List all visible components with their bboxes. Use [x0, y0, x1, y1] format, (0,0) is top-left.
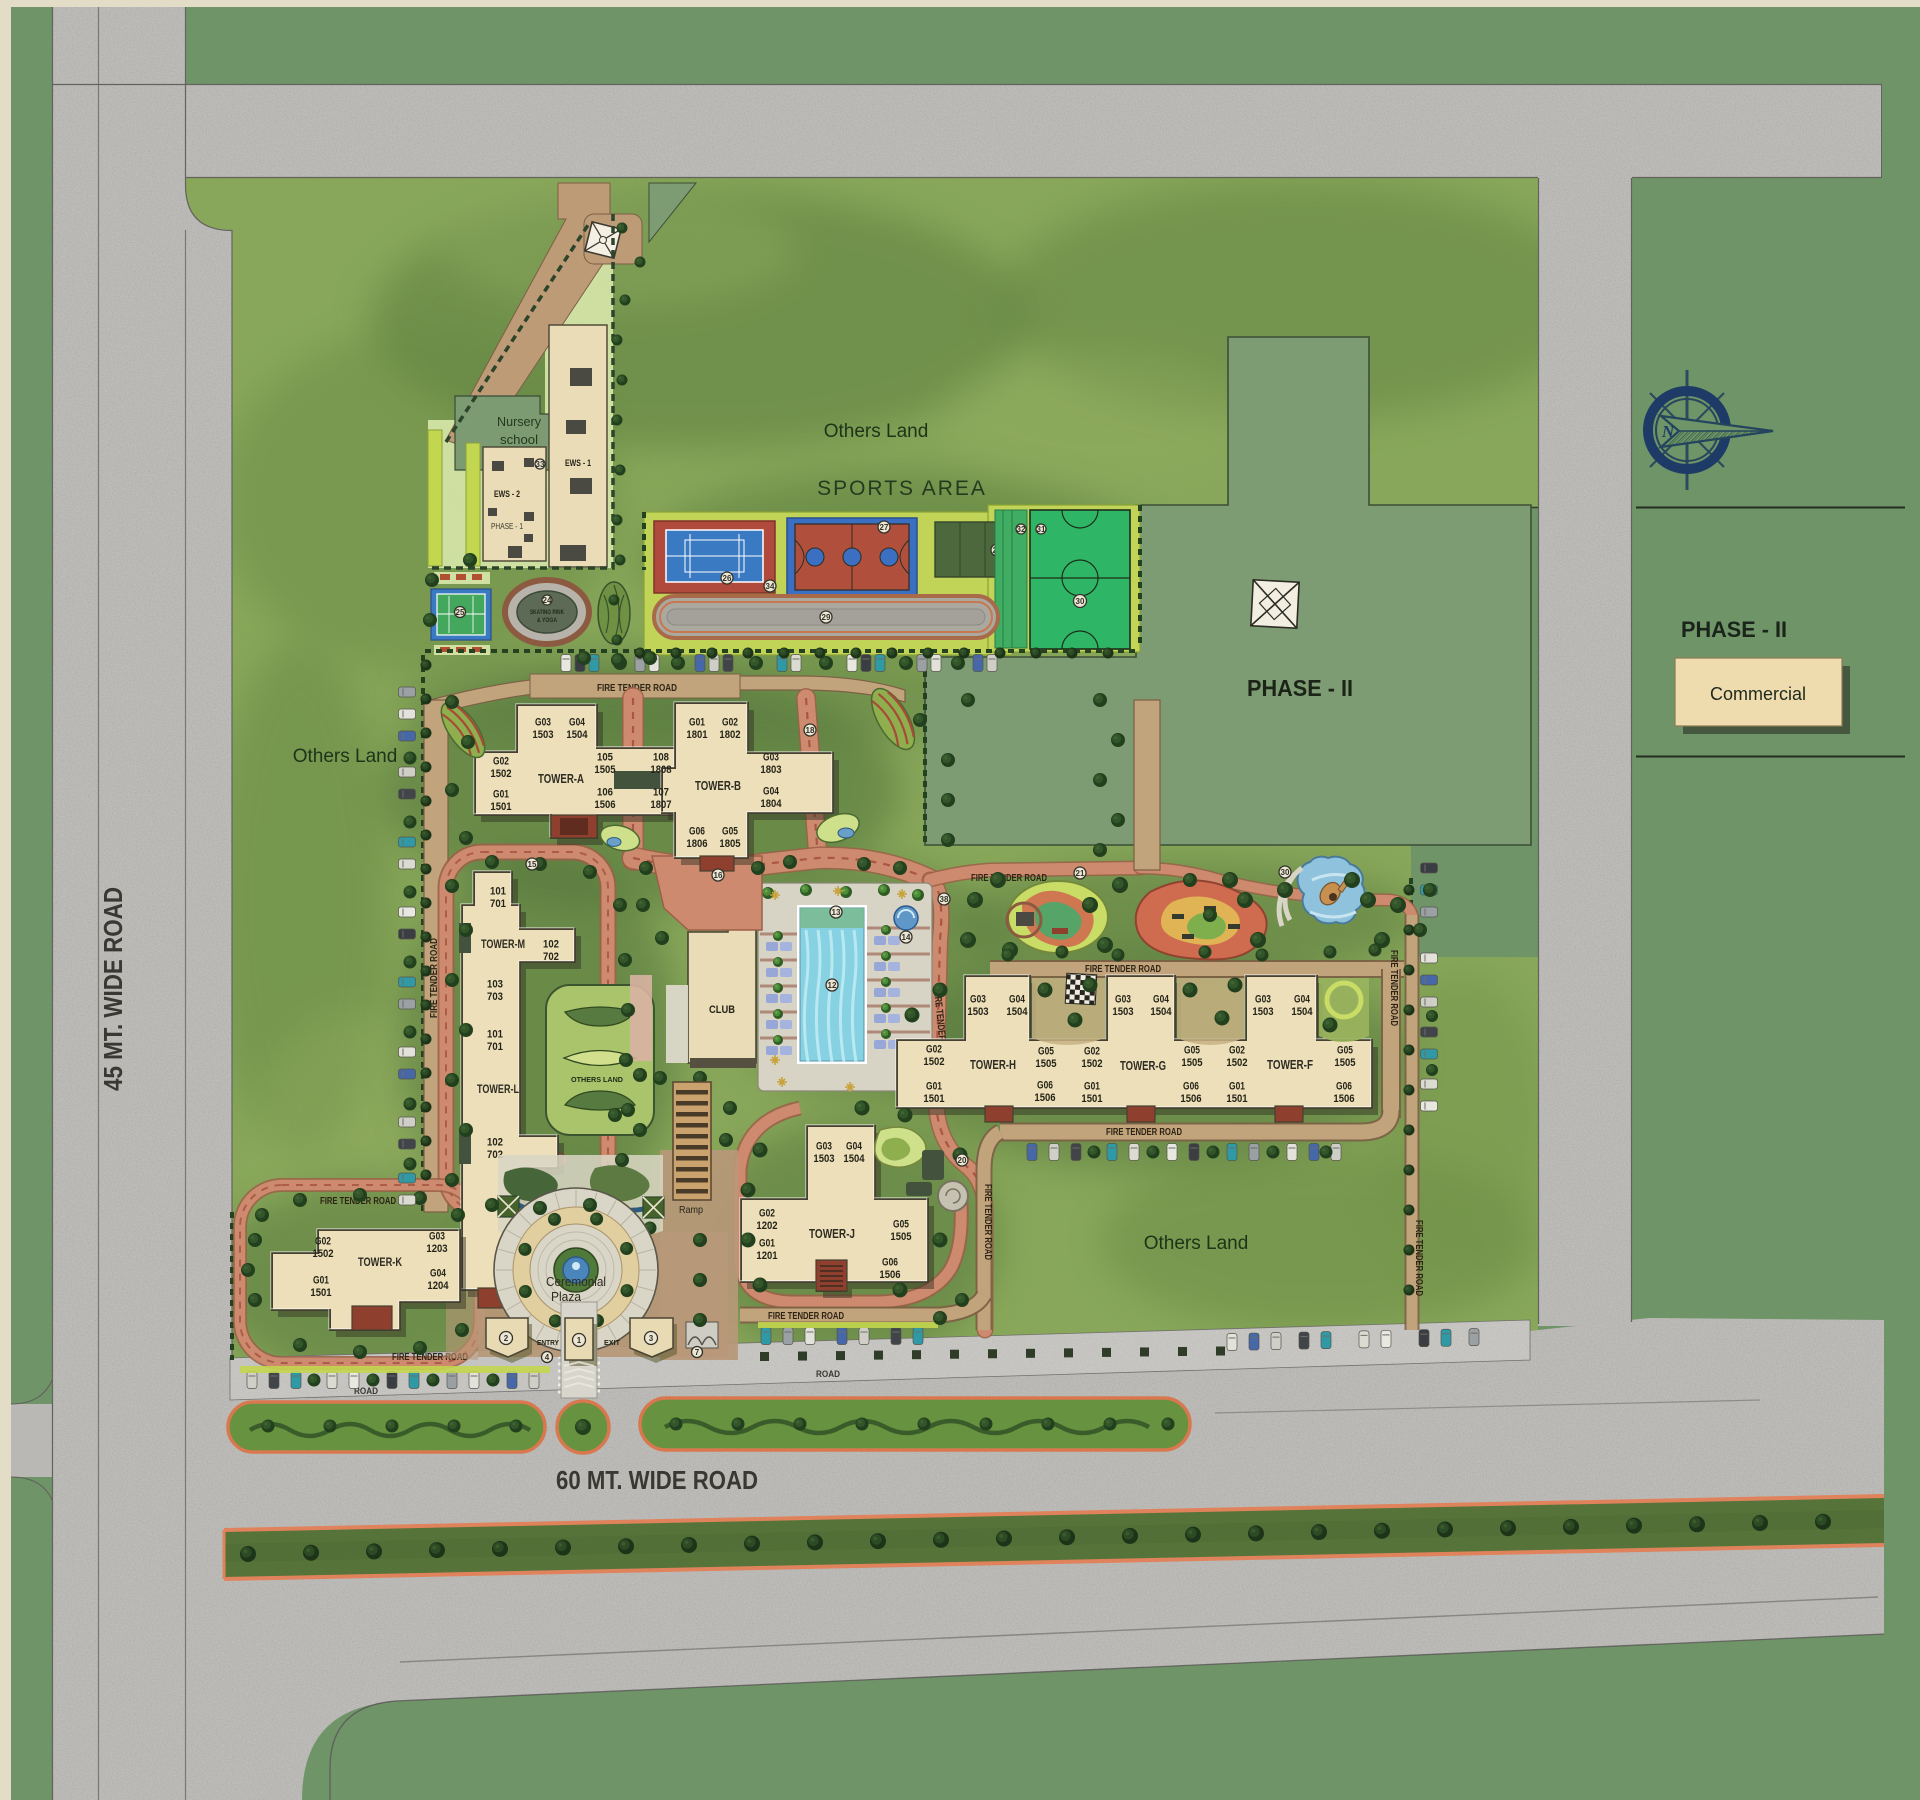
svg-text:school: school	[500, 432, 538, 447]
svg-text:FIRE TENDER ROAD: FIRE TENDER ROAD	[768, 1311, 844, 1322]
svg-text:G01: G01	[1229, 1081, 1245, 1093]
svg-text:106: 106	[597, 787, 613, 799]
svg-text:34: 34	[766, 582, 775, 591]
svg-text:1503: 1503	[813, 1153, 834, 1165]
svg-text:29: 29	[822, 613, 831, 622]
svg-text:G06: G06	[1336, 1081, 1352, 1093]
svg-text:G06: G06	[1183, 1081, 1199, 1093]
svg-text:G02: G02	[315, 1236, 331, 1248]
svg-text:ENTRY: ENTRY	[537, 1338, 559, 1347]
svg-text:FIRE TENDER ROAD: FIRE TENDER ROAD	[1388, 950, 1399, 1026]
svg-text:60 MT. WIDE ROAD: 60 MT. WIDE ROAD	[556, 1465, 758, 1495]
svg-text:1502: 1502	[1226, 1057, 1247, 1069]
svg-text:1506: 1506	[879, 1269, 900, 1281]
svg-text:G03: G03	[1255, 994, 1271, 1006]
svg-text:18: 18	[806, 726, 815, 735]
svg-text:20: 20	[958, 1156, 967, 1165]
svg-text:16: 16	[714, 871, 723, 880]
svg-text:1506: 1506	[1180, 1093, 1201, 1105]
svg-text:1203: 1203	[426, 1243, 447, 1255]
svg-text:Others Land: Others Land	[824, 421, 929, 442]
svg-text:1807: 1807	[650, 799, 671, 811]
svg-text:103: 103	[487, 979, 503, 991]
svg-text:1806: 1806	[686, 838, 707, 850]
svg-text:CLUB: CLUB	[709, 1004, 735, 1016]
svg-text:Commercial: Commercial	[1710, 684, 1806, 704]
svg-text:1505: 1505	[1334, 1057, 1355, 1069]
svg-text:G03: G03	[1115, 994, 1131, 1006]
svg-text:EWS - 2: EWS - 2	[494, 489, 520, 499]
svg-text:1803: 1803	[760, 764, 781, 776]
svg-text:1804: 1804	[760, 798, 782, 810]
svg-text:1501: 1501	[310, 1287, 331, 1299]
svg-text:FIRE TENDER ROAD: FIRE TENDER ROAD	[1413, 1220, 1424, 1296]
svg-text:1504: 1504	[1006, 1006, 1028, 1018]
svg-text:TOWER-H: TOWER-H	[970, 1057, 1016, 1072]
svg-text:G04: G04	[430, 1268, 447, 1280]
svg-text:1502: 1502	[923, 1056, 944, 1068]
svg-text:1504: 1504	[566, 729, 588, 741]
svg-text:1506: 1506	[594, 799, 615, 811]
svg-text:1: 1	[577, 1336, 582, 1345]
svg-text:1501: 1501	[1226, 1093, 1247, 1105]
svg-text:1202: 1202	[756, 1220, 777, 1232]
svg-text:1502: 1502	[490, 768, 511, 780]
svg-text:1506: 1506	[1034, 1092, 1055, 1104]
svg-text:7: 7	[695, 1348, 700, 1357]
svg-text:1502: 1502	[312, 1248, 333, 1260]
svg-text:1802: 1802	[719, 729, 740, 741]
svg-text:32: 32	[1017, 525, 1026, 534]
svg-text:G06: G06	[689, 826, 705, 838]
svg-text:G04: G04	[1009, 994, 1026, 1006]
svg-text:Others Land: Others Land	[293, 746, 398, 767]
svg-text:G05: G05	[1184, 1045, 1200, 1057]
svg-text:G01: G01	[759, 1238, 775, 1250]
svg-text:TOWER-K: TOWER-K	[358, 1255, 402, 1269]
svg-text:107: 107	[653, 787, 669, 799]
svg-text:101: 101	[487, 1029, 503, 1041]
svg-text:TOWER-M: TOWER-M	[481, 937, 525, 951]
svg-text:102: 102	[487, 1137, 503, 1149]
svg-text:G04: G04	[569, 717, 586, 729]
svg-text:G05: G05	[1337, 1045, 1353, 1057]
svg-text:1504: 1504	[843, 1153, 865, 1165]
svg-text:4: 4	[545, 1353, 550, 1362]
svg-text:PHASE - II: PHASE - II	[1247, 675, 1353, 701]
svg-text:TOWER-F: TOWER-F	[1267, 1057, 1313, 1072]
svg-text:38: 38	[940, 895, 949, 904]
svg-text:701: 701	[490, 898, 506, 910]
svg-text:701: 701	[487, 1041, 503, 1053]
svg-text:G06: G06	[882, 1257, 898, 1269]
svg-text:TOWER-G: TOWER-G	[1120, 1058, 1166, 1073]
svg-text:TOWER-B: TOWER-B	[695, 778, 741, 793]
svg-text:FIRE TENDER ROAD: FIRE TENDER ROAD	[982, 1184, 993, 1260]
svg-text:1501: 1501	[490, 801, 511, 813]
svg-text:G01: G01	[313, 1275, 329, 1287]
svg-text:G01: G01	[926, 1081, 942, 1093]
svg-text:Ramp: Ramp	[679, 1205, 703, 1216]
svg-text:G04: G04	[1153, 994, 1170, 1006]
svg-text:G03: G03	[970, 994, 986, 1006]
svg-text:1501: 1501	[1081, 1093, 1102, 1105]
svg-text:1505: 1505	[890, 1231, 911, 1243]
svg-text:G01: G01	[1084, 1081, 1100, 1093]
svg-text:13: 13	[832, 908, 841, 917]
svg-text:G01: G01	[689, 717, 705, 729]
svg-text:G05: G05	[893, 1219, 909, 1231]
svg-text:Ceremonial: Ceremonial	[546, 1274, 606, 1289]
svg-text:25: 25	[456, 608, 465, 617]
svg-text:15: 15	[528, 860, 537, 869]
svg-text:& YOGA: & YOGA	[537, 618, 558, 624]
svg-text:101: 101	[490, 886, 506, 898]
svg-text:1505: 1505	[594, 764, 615, 776]
svg-text:ROAD: ROAD	[816, 1369, 840, 1380]
svg-text:G05: G05	[722, 826, 738, 838]
svg-text:SKATING RINK: SKATING RINK	[530, 610, 565, 616]
svg-text:102: 102	[543, 939, 559, 951]
svg-text:FIRE TENDER ROAD: FIRE TENDER ROAD	[971, 873, 1047, 884]
svg-text:1503: 1503	[532, 729, 553, 741]
svg-text:SPORTS AREA: SPORTS AREA	[817, 477, 987, 500]
svg-text:Nursery: Nursery	[497, 414, 541, 429]
svg-text:G06: G06	[1037, 1080, 1053, 1092]
svg-text:702: 702	[543, 951, 559, 963]
svg-text:30: 30	[1281, 868, 1290, 877]
svg-text:G02: G02	[493, 756, 509, 768]
svg-text:45 MT. WIDE ROAD: 45 MT. WIDE ROAD	[98, 887, 128, 1091]
svg-text:1505: 1505	[1181, 1057, 1202, 1069]
svg-text:31: 31	[1037, 525, 1046, 534]
svg-text:G05: G05	[1038, 1046, 1054, 1058]
svg-text:FIRE TENDER ROAD: FIRE TENDER ROAD	[1106, 1127, 1182, 1138]
svg-text:27: 27	[880, 523, 889, 532]
svg-text:FIRE TENDER ROAD: FIRE TENDER ROAD	[1085, 964, 1161, 975]
svg-text:TOWER-L: TOWER-L	[477, 1082, 519, 1096]
svg-text:1808: 1808	[650, 764, 671, 776]
svg-text:TOWER-A: TOWER-A	[538, 771, 584, 786]
svg-text:703: 703	[487, 991, 503, 1003]
svg-text:G04: G04	[846, 1141, 863, 1153]
svg-text:1204: 1204	[427, 1280, 449, 1292]
svg-text:1805: 1805	[719, 838, 740, 850]
svg-text:1501: 1501	[923, 1093, 944, 1105]
svg-text:12: 12	[828, 981, 837, 990]
svg-text:1503: 1503	[1112, 1006, 1133, 1018]
svg-text:14: 14	[902, 933, 911, 942]
svg-text:G02: G02	[722, 717, 738, 729]
svg-text:PHASE - 1: PHASE - 1	[491, 522, 523, 531]
svg-text:1505: 1505	[1035, 1058, 1056, 1070]
svg-text:N: N	[1661, 422, 1675, 441]
svg-text:EXIT: EXIT	[604, 1338, 620, 1347]
svg-text:1801: 1801	[686, 729, 707, 741]
svg-text:G03: G03	[429, 1231, 445, 1243]
svg-text:1503: 1503	[967, 1006, 988, 1018]
svg-text:OTHERS LAND: OTHERS LAND	[571, 1075, 624, 1084]
svg-text:24: 24	[543, 596, 552, 605]
svg-text:G02: G02	[759, 1208, 775, 1220]
svg-text:1506: 1506	[1333, 1093, 1354, 1105]
svg-text:PHASE - II: PHASE - II	[1681, 617, 1787, 642]
svg-text:108: 108	[653, 752, 669, 764]
svg-text:EWS - 1: EWS - 1	[565, 458, 591, 468]
svg-text:1502: 1502	[1081, 1058, 1102, 1070]
svg-text:1503: 1503	[1252, 1006, 1273, 1018]
svg-text:G01: G01	[493, 789, 509, 801]
svg-text:33: 33	[536, 460, 545, 469]
svg-text:G03: G03	[816, 1141, 832, 1153]
svg-text:1504: 1504	[1150, 1006, 1172, 1018]
svg-text:3: 3	[649, 1334, 654, 1343]
svg-text:Others Land: Others Land	[1144, 1233, 1249, 1254]
svg-text:G02: G02	[926, 1044, 942, 1056]
svg-text:G03: G03	[763, 752, 779, 764]
svg-text:30: 30	[1076, 597, 1085, 606]
svg-text:G04: G04	[1294, 994, 1311, 1006]
svg-text:TOWER-J: TOWER-J	[809, 1226, 855, 1241]
svg-text:26: 26	[723, 574, 732, 583]
svg-text:G02: G02	[1229, 1045, 1245, 1057]
svg-text:1504: 1504	[1291, 1006, 1313, 1018]
svg-text:21: 21	[1076, 869, 1085, 878]
svg-text:105: 105	[597, 752, 613, 764]
svg-text:G02: G02	[1084, 1046, 1100, 1058]
svg-text:G03: G03	[535, 717, 551, 729]
svg-text:1201: 1201	[756, 1250, 777, 1262]
svg-text:2: 2	[504, 1334, 509, 1343]
svg-text:G04: G04	[763, 786, 780, 798]
